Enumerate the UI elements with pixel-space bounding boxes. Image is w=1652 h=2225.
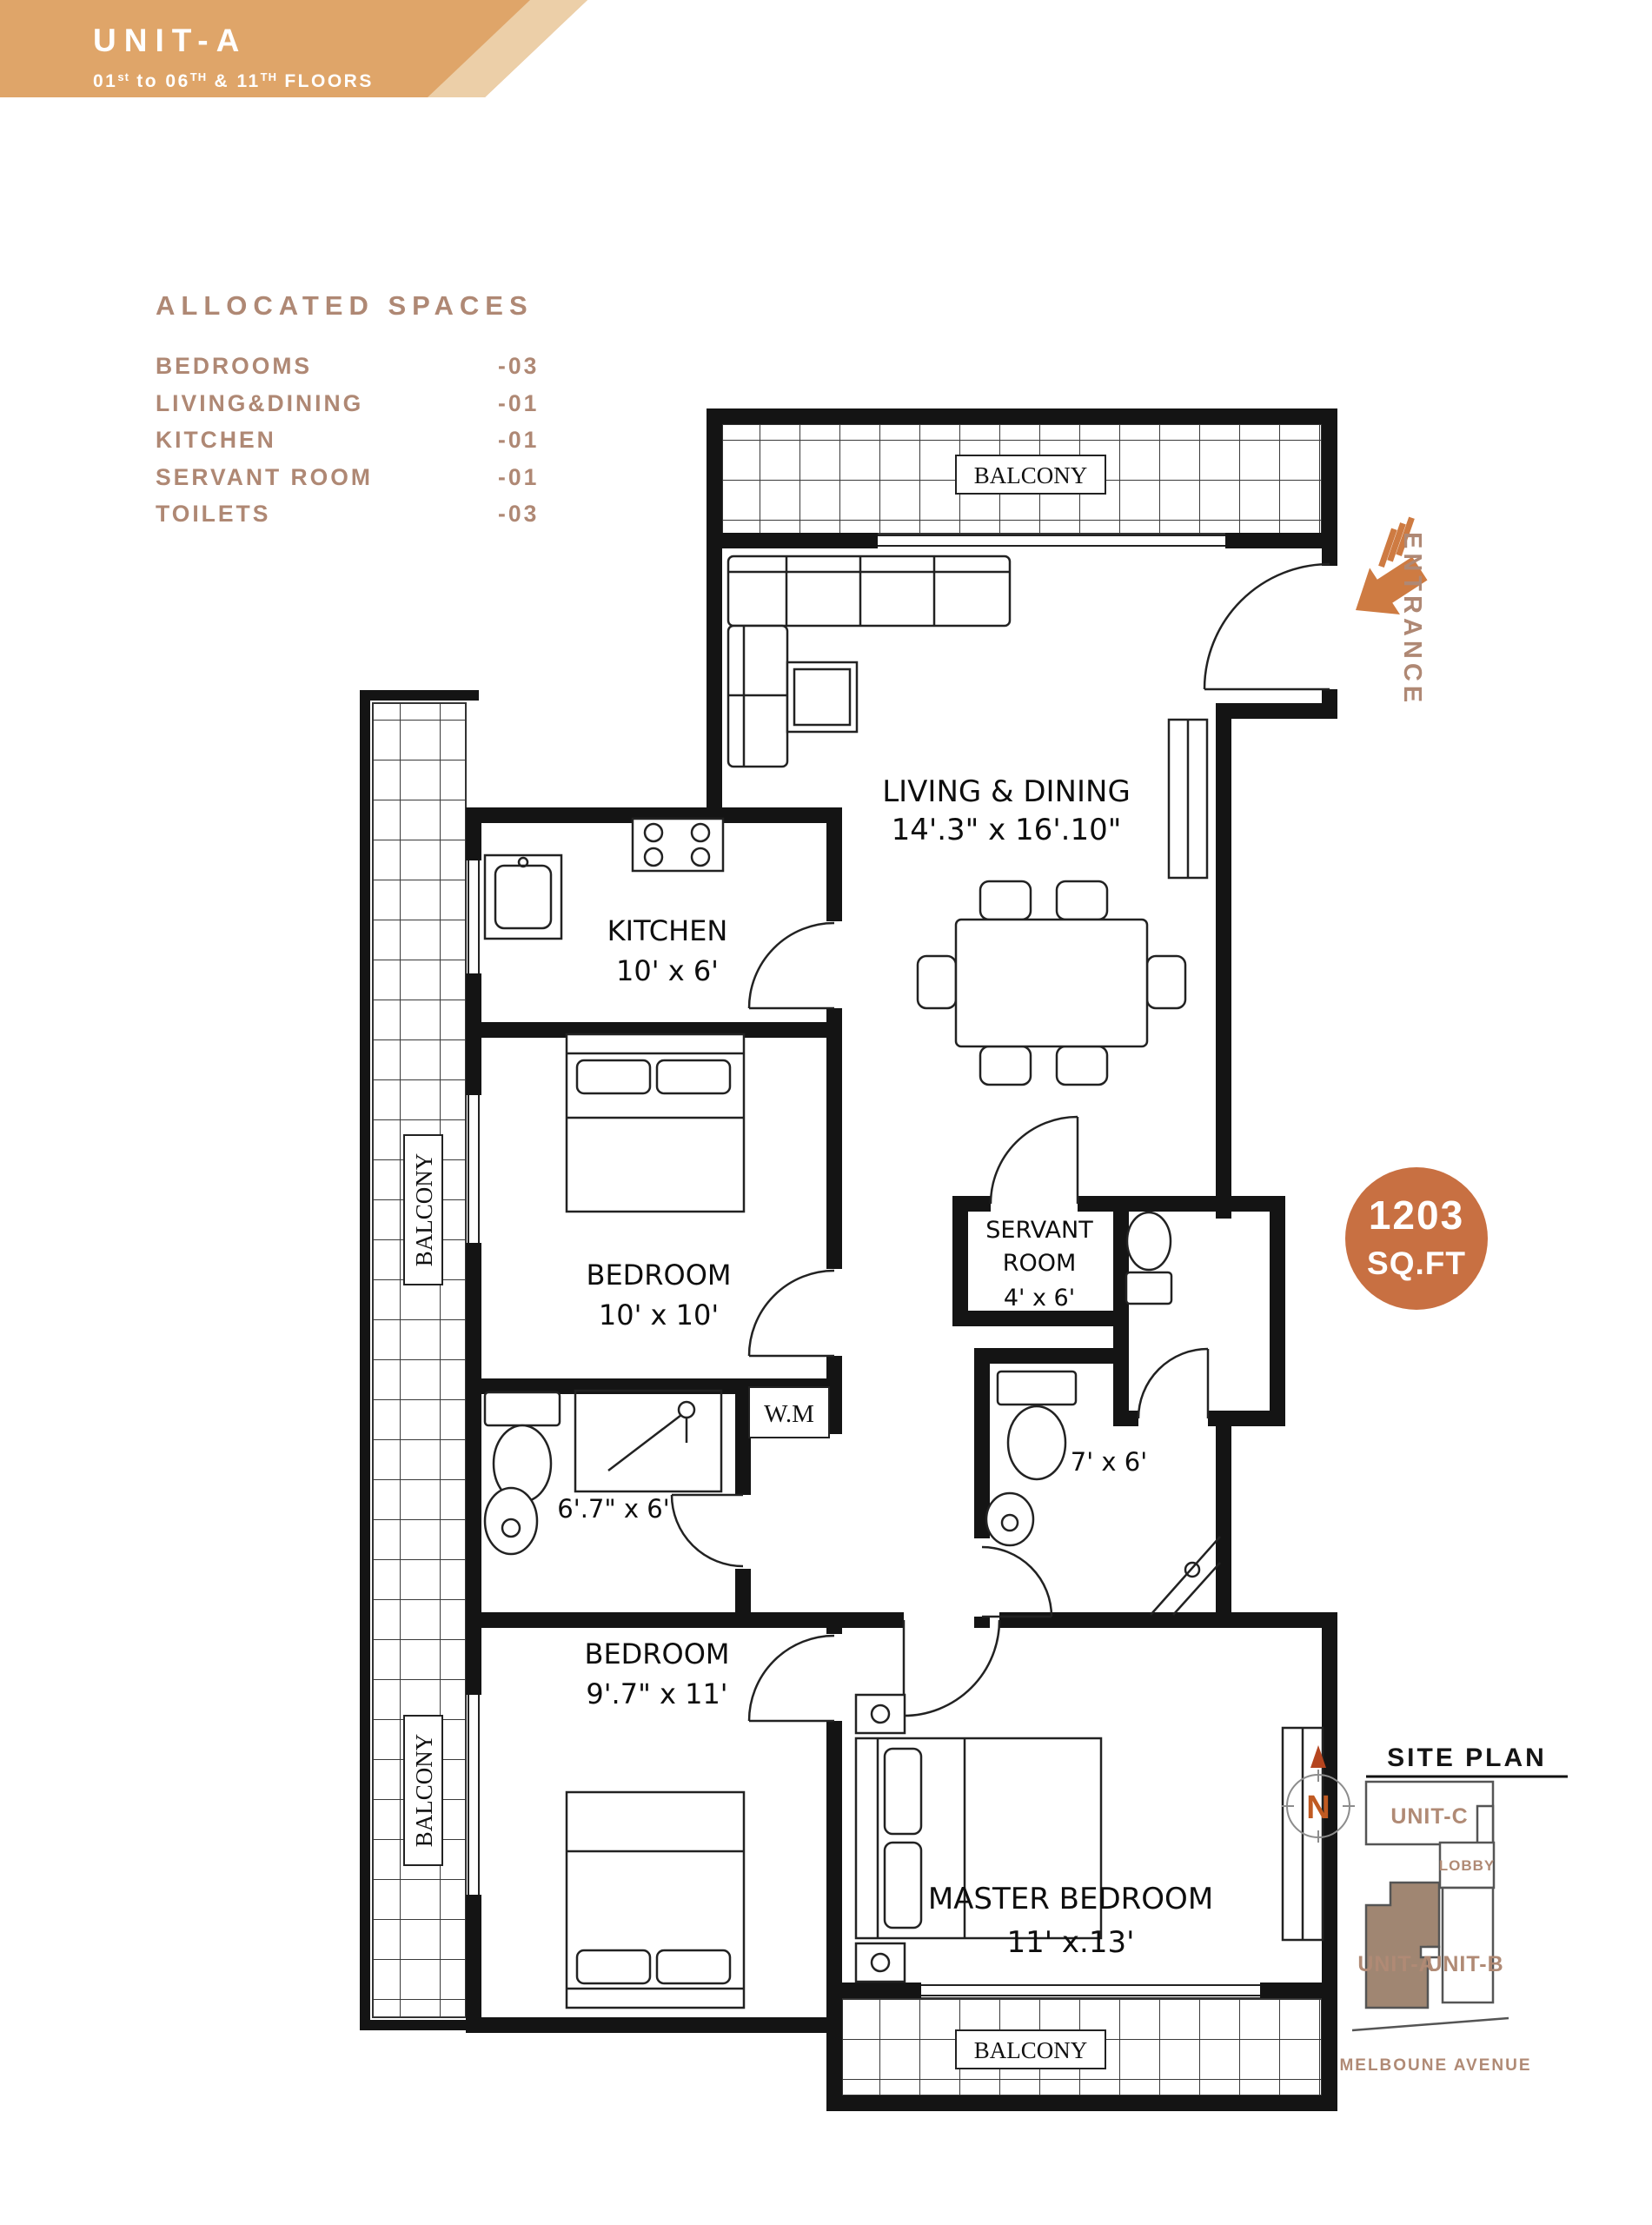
- toilet2-fixtures: [986, 1372, 1220, 1615]
- servant-toilet-door: [1138, 1349, 1208, 1418]
- servant-door: [991, 1117, 1078, 1204]
- floorplan-page: UNIT-A 01st to 06TH & 11TH FLOORS ALLOCA…: [0, 0, 1652, 2225]
- entry-cabinet: [1169, 720, 1207, 878]
- servant-room-dim: 4' x 6': [1004, 1285, 1075, 1312]
- master-bedroom-label: MASTER BEDROOM: [928, 1882, 1213, 1916]
- master-bedroom-dim: 11' x.13': [1007, 1925, 1135, 1960]
- bedroom2-label: BEDROOM: [584, 1637, 729, 1670]
- floor-plan-svg: BALCONY BALCONY BALCONY BALCONY W.M LIVI…: [0, 0, 1652, 2225]
- site-unit-a-label: UNIT-A: [1357, 1952, 1435, 1976]
- wm-label: W.M: [764, 1400, 814, 1428]
- bed-bedroom1: [567, 1034, 744, 1212]
- top-balcony-label: BALCONY: [974, 462, 1088, 488]
- bedroom1-door: [749, 1271, 834, 1356]
- bedroom2-door: [749, 1636, 834, 1721]
- entrance-marker: ENTRANCE: [1330, 518, 1453, 707]
- stove: [633, 819, 723, 871]
- site-unit-b-label: UNIT-B: [1426, 1952, 1503, 1976]
- kitchen-dim: 10' x 6': [616, 954, 719, 987]
- toilet1-fixtures: [485, 1391, 721, 1554]
- area-unit: SQ.FT: [1367, 1245, 1466, 1281]
- site-plan-title: SITE PLAN: [1387, 1743, 1547, 1772]
- toilet2-door: [982, 1547, 1052, 1617]
- bedroom2-dim: 9'.7" x 11': [586, 1677, 727, 1710]
- bottom-balcony-label: BALCONY: [974, 2037, 1088, 2063]
- toilet1-door: [672, 1495, 743, 1566]
- site-lobby-label: LOBBY: [1439, 1857, 1496, 1874]
- area-badge: 1203 SQ.FT: [1345, 1167, 1488, 1310]
- bed-bedroom2: [567, 1792, 744, 2008]
- site-road-line: [1352, 2018, 1509, 2030]
- kitchen-label: KITCHEN: [607, 914, 728, 947]
- bedroom1-label: BEDROOM: [586, 1259, 731, 1292]
- svg-text:BALCONY: BALCONY: [411, 1153, 437, 1267]
- site-unit-b-outline: [1443, 1888, 1493, 2002]
- svg-text:BALCONY: BALCONY: [411, 1734, 437, 1848]
- living-dining-dim: 14'.3" x 16'.10": [892, 813, 1122, 847]
- entrance-label: ENTRANCE: [1398, 532, 1426, 707]
- kitchen-sink: [485, 855, 561, 939]
- floor-plan: BALCONY BALCONY BALCONY BALCONY W.M LIVI…: [360, 408, 1337, 2111]
- sofa: [728, 556, 1010, 767]
- kitchen-door: [749, 923, 834, 1008]
- servant-toilet-fixtures: [1126, 1212, 1171, 1304]
- toilet1-dim: 6'.7" x 6': [557, 1494, 669, 1524]
- toilet2-dim: 7' x 6': [1071, 1447, 1147, 1477]
- servant-room-label-2: ROOM: [1003, 1250, 1077, 1277]
- servant-room-label-1: SERVANT: [985, 1217, 1093, 1244]
- entrance-door: [1204, 564, 1330, 689]
- dining-set: [918, 881, 1185, 1085]
- north-label: N: [1306, 1790, 1330, 1826]
- site-unit-a-shape: [1366, 1883, 1439, 2008]
- area-badge-circle: [1345, 1167, 1488, 1310]
- site-unit-c-label: UNIT-C: [1390, 1804, 1468, 1829]
- site-unit-c-wing: [1477, 1806, 1493, 1844]
- master-door: [904, 1620, 999, 1716]
- left-balcony-label-lower: BALCONY: [404, 1716, 442, 1865]
- bedroom1-dim: 10' x 10': [599, 1298, 719, 1332]
- coffee-table: [787, 662, 857, 732]
- entrance-arrow-icon: [1330, 518, 1453, 634]
- street-label: MELBOUNE AVENUE: [1339, 2056, 1531, 2075]
- area-value: 1203: [1369, 1192, 1464, 1238]
- living-dining-label: LIVING & DINING: [882, 774, 1131, 809]
- left-balcony-label-upper: BALCONY: [404, 1135, 442, 1285]
